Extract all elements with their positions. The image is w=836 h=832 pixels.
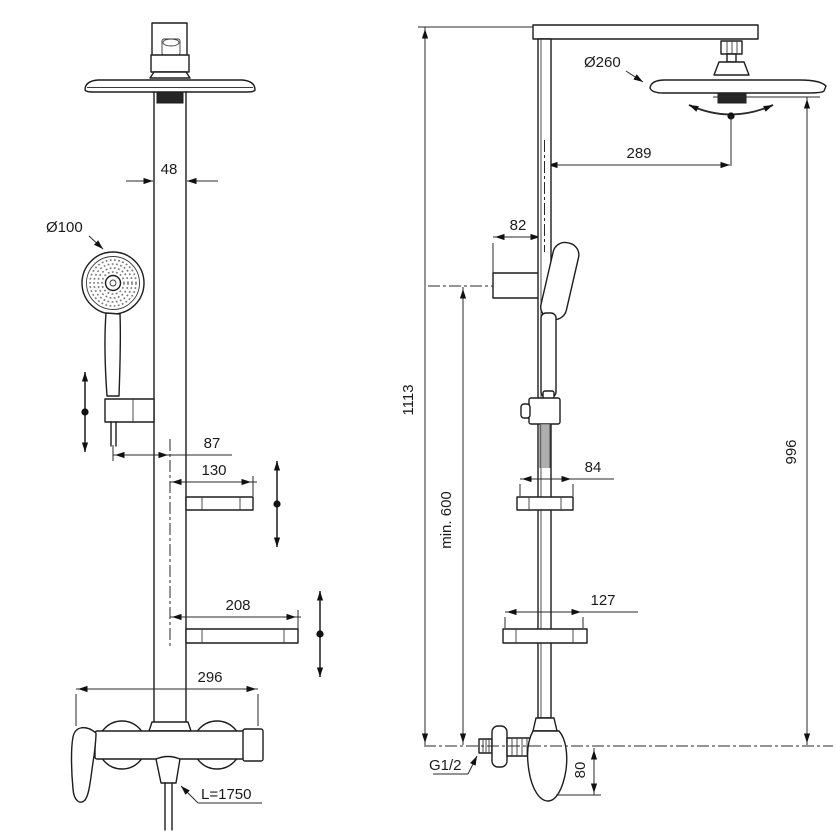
label-text-head-diameter: Ø260 [584, 54, 621, 71]
dim-text-body-drop: 80 [572, 762, 589, 779]
dim-text-head-reach: 289 [626, 145, 651, 162]
mixer-body-front [95, 731, 258, 759]
mixer-lever-front [72, 728, 97, 802]
dim-text-lower-shelf-width: 208 [225, 597, 250, 614]
dim-upper-shelf-depth: 84 [520, 459, 614, 496]
ball-joint-nut [721, 41, 742, 54]
technical-drawing-page: 48 Ø100 [0, 0, 836, 832]
wall-bracket-front [150, 23, 190, 78]
mixer-end-cap [243, 729, 263, 761]
dim-text-total-height: 1113 [400, 384, 417, 415]
mixer-front [72, 721, 264, 830]
head-inlet-side [718, 93, 746, 103]
dim-head-reach: 289 [546, 145, 732, 165]
hand-shower-holder-front [105, 399, 154, 422]
label-inlet-thread: G1/2 [429, 756, 477, 774]
dim-text-head-underside-height: 996 [783, 439, 800, 464]
holder-clamp-side [529, 398, 560, 424]
dim-lower-shelf-width: 208 [170, 597, 301, 629]
holder-knob [521, 404, 530, 418]
dim-head-underside-height: 996 [713, 97, 820, 745]
height-adjust-arrow-holder [81, 372, 88, 452]
head-inlet-front [157, 92, 183, 103]
tilt-adjust-arrow [689, 105, 773, 164]
mixer-collar-side [533, 718, 557, 731]
shower-system-drawing: 48 Ø100 [0, 0, 836, 832]
dim-text-holder-depth: 82 [510, 217, 527, 234]
upper-shelf-front [186, 497, 253, 510]
head-arm-side [533, 25, 758, 75]
height-adjust-arrow-upper-shelf [273, 461, 280, 547]
dim-text-upper-shelf-width: 130 [201, 462, 226, 479]
dim-text-lower-shelf-depth: 127 [590, 592, 615, 609]
rain-head-front [85, 80, 255, 103]
label-text-hand-shower-diameter: Ø100 [46, 219, 83, 236]
dim-text-holder-to-center: 87 [204, 435, 221, 452]
label-text-inlet-thread: G1/2 [429, 757, 462, 774]
lower-shelf-front [186, 629, 298, 643]
dim-text-mixer-width: 296 [197, 669, 222, 686]
dim-text-min-mounting-height: min. 600 [438, 491, 455, 549]
hand-shower-handle-side [541, 313, 556, 397]
lower-shelf-side [503, 629, 587, 643]
side-view: Ø260 289 996 1113 [400, 25, 833, 801]
dim-min-mounting-height: min. 600 [438, 287, 463, 745]
hand-shower-handle-front [105, 313, 121, 396]
label-hand-shower-diameter: Ø100 [46, 219, 103, 249]
column-base-flare-front [149, 722, 191, 731]
dim-mixer-width: 296 [76, 669, 258, 726]
hand-shower-front [82, 252, 154, 446]
label-head-diameter: Ø260 [584, 54, 643, 82]
mixer-lever-side [528, 731, 567, 801]
height-adjust-arrow-lower-shelf [316, 591, 323, 677]
dim-column-width: 48 [126, 161, 218, 181]
label-text-hose-length: L=1750 [201, 786, 251, 803]
rain-head-side [650, 80, 826, 103]
label-hose-length: L=1750 [181, 786, 262, 803]
upper-shelf-side [517, 497, 573, 510]
dim-holder-to-center: 87 [113, 435, 232, 461]
hand-shower-hub [106, 276, 121, 291]
hand-shower-holder-side [493, 273, 539, 298]
hose-side [540, 424, 550, 468]
dim-text-column-width: 48 [161, 161, 178, 178]
dim-lower-shelf-depth: 127 [505, 592, 638, 628]
mixer-side [479, 718, 567, 801]
front-view: 48 Ø100 [46, 23, 324, 830]
hose-outlet-front [156, 757, 180, 784]
dim-text-upper-shelf-depth: 84 [585, 459, 602, 476]
dim-upper-shelf-width: 130 [170, 462, 257, 496]
